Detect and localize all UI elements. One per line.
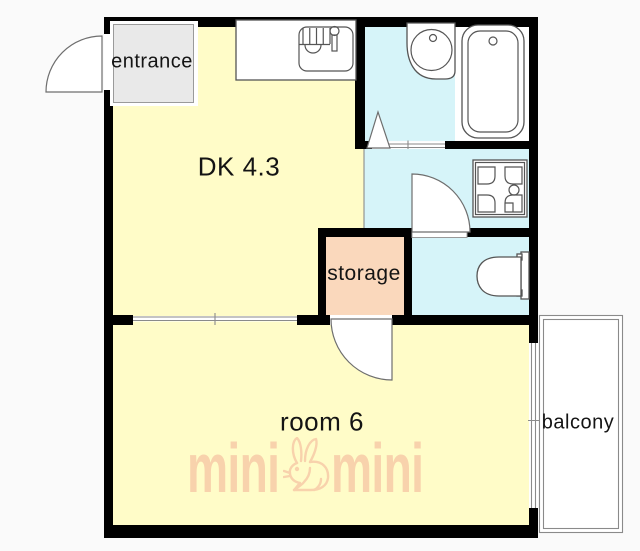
watermark-text-left: mini <box>187 433 279 503</box>
kitchen-sink <box>236 20 356 80</box>
wall-bottom <box>104 525 538 538</box>
wall-room6-top-mid <box>297 315 330 325</box>
rabbit-ear-left <box>293 438 301 463</box>
wall-room6-top-right <box>392 315 538 325</box>
bathtub <box>462 25 524 138</box>
balcony-window-opening <box>529 343 538 508</box>
wall-washroom-bottom-left <box>318 228 412 237</box>
entrance-label: entrance <box>111 51 193 74</box>
wall-storage-right <box>404 228 412 325</box>
wall-room6-top-stub <box>113 315 133 325</box>
wall-right-upper <box>529 17 538 343</box>
rabbit-ear-right <box>305 439 317 462</box>
toilet-bowl <box>477 257 521 296</box>
wall-bath-washroom-right <box>445 141 529 149</box>
storage-label: storage <box>327 262 401 286</box>
dk-label: DK 4.3 <box>198 152 281 183</box>
washing-machine-pan <box>473 160 527 217</box>
wall-storage-left <box>318 228 326 325</box>
balcony-label: balcony <box>542 412 614 435</box>
wall-right-lower <box>529 508 538 538</box>
rabbit-head <box>290 463 300 483</box>
wall-washroom-bottom-right <box>467 228 529 237</box>
floor-plan: entrance DK 4.3 storage room 6 balcony m… <box>0 0 640 551</box>
bathtub-outer <box>462 25 524 138</box>
wall-left <box>104 90 113 538</box>
rabbit-icon <box>283 437 330 494</box>
entrance-door-swing <box>46 36 102 92</box>
rabbit-eye <box>295 467 299 471</box>
watermark-text-right: mini <box>331 433 423 503</box>
